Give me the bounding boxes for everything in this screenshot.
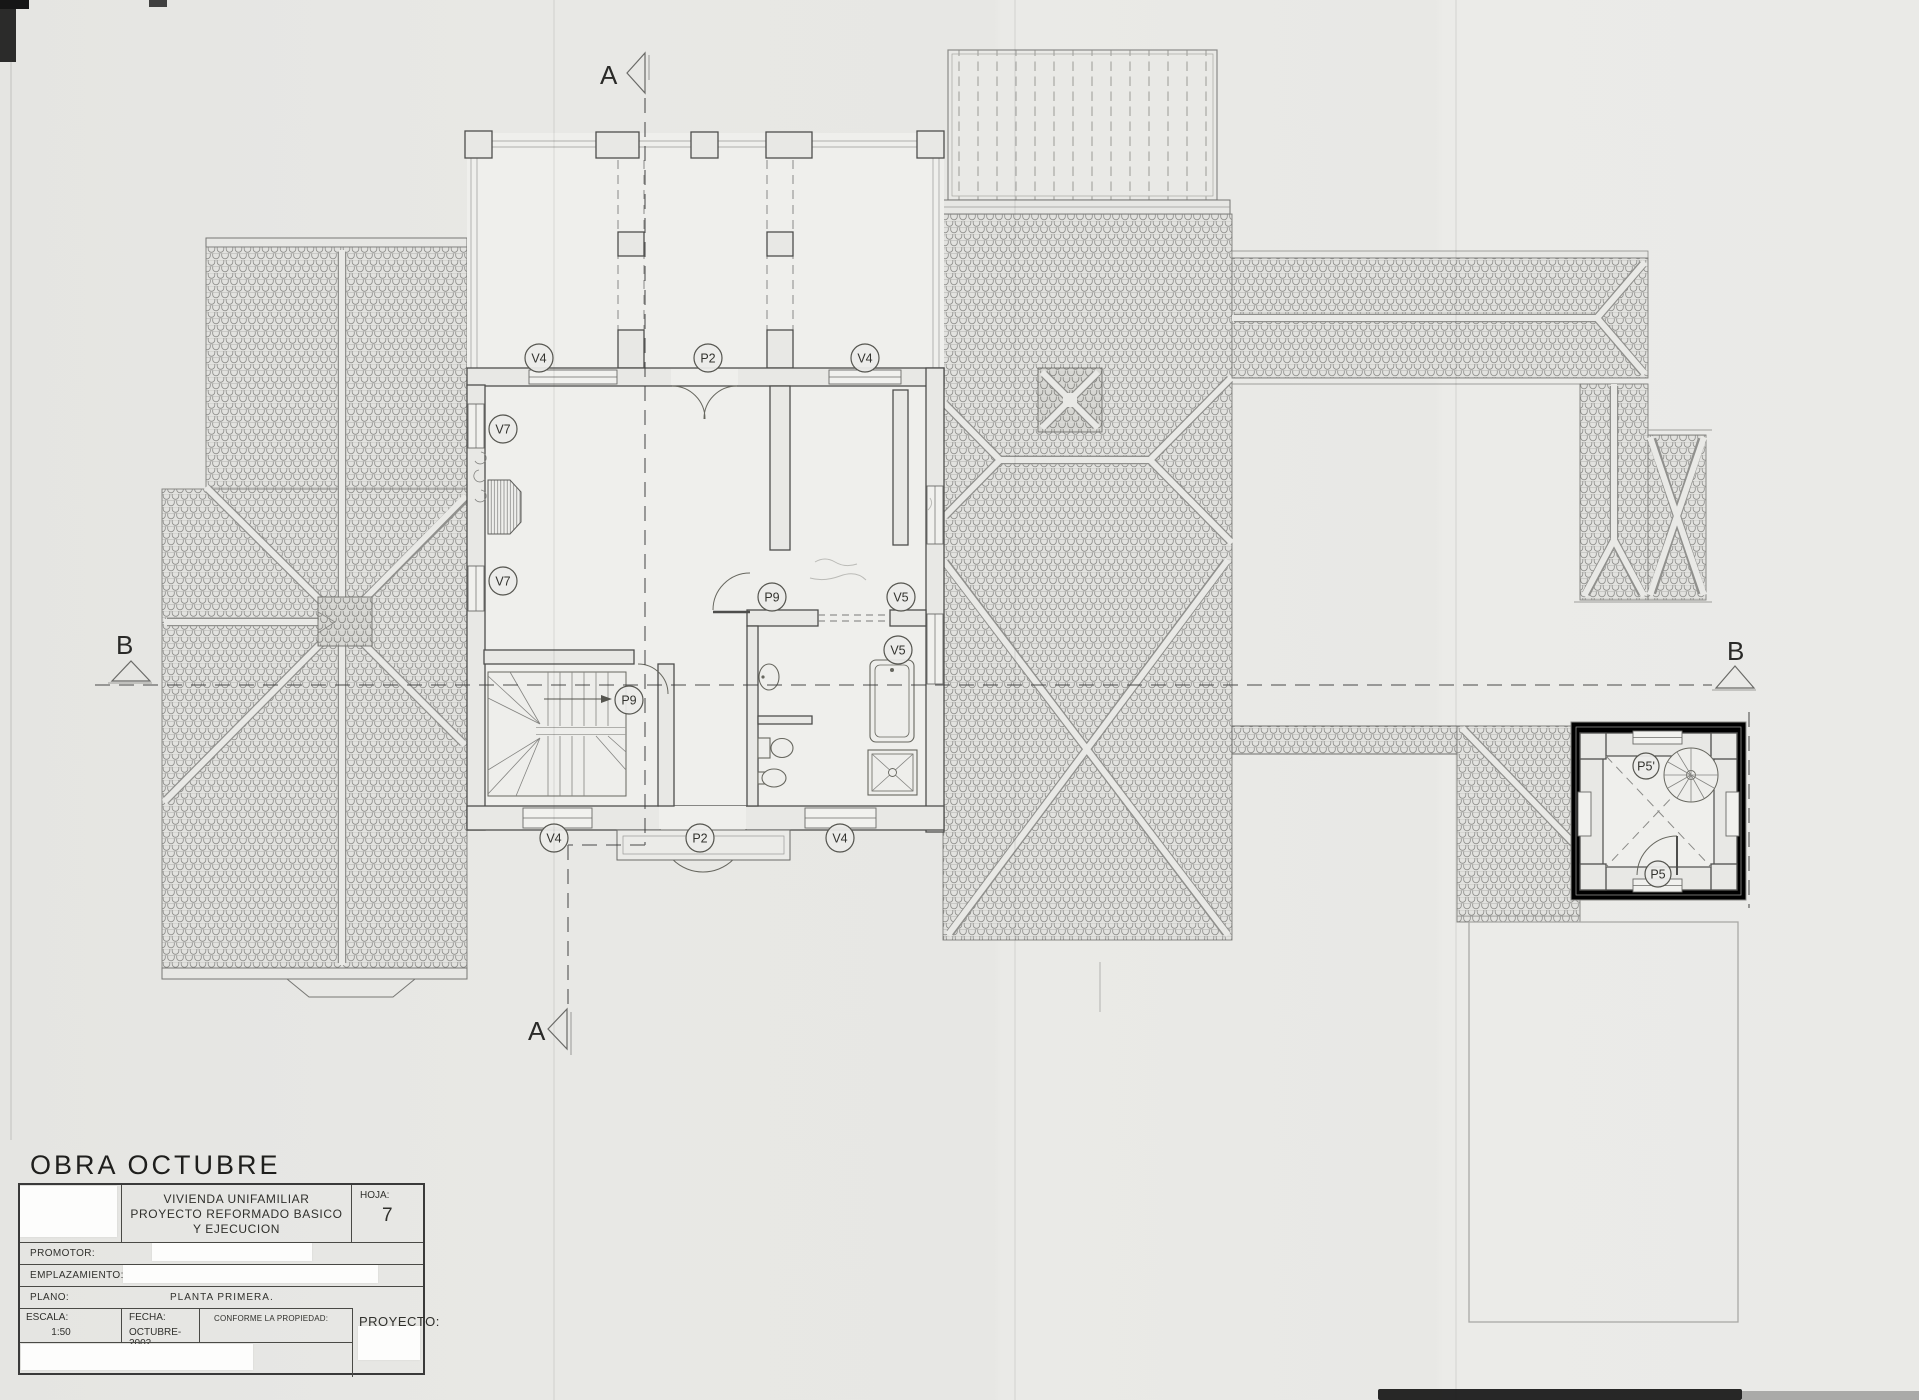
fold-crease [553,0,555,1400]
redacted-promoter [152,1243,312,1261]
paper-edge [10,60,12,1140]
pillar [465,131,492,158]
tag-terrace-window-right: V4 [851,344,879,372]
sheet-cell: HOJA: 7 [352,1185,425,1242]
tag-hall-door: P9 [758,583,786,611]
bidet [762,769,786,787]
tag-tower-upper-door: P5' [1633,753,1659,779]
tag-stair-door: P9 [615,686,643,714]
redacted-project [358,1326,420,1360]
pillar [766,132,812,158]
wc [771,739,793,758]
svg-text:V4: V4 [531,352,546,366]
approval-cell: CONFORME LA PROPIEDAD: [200,1309,352,1343]
section-letter: B [1727,636,1744,666]
band-roof [1232,251,1712,602]
building [465,131,944,872]
pillar [691,132,718,158]
tag-west-window-upper: V7 [489,415,517,443]
east-wall [926,368,944,832]
tag-bathroom-window: V5 [884,636,912,664]
work-title-line1: VIVIENDA UNIFAMILIAR [163,1192,309,1206]
section-letter: A [528,1016,546,1046]
stairs [488,672,626,796]
tag-terrace-window-left: V4 [525,344,553,372]
svg-text:V7: V7 [495,423,510,437]
scan-mark [1742,1391,1919,1400]
scanned-plan-sheet: A A B B V4 P2 V4 V7 V7 P9 V5 V5 P9 V4 P2… [0,0,1919,1400]
chimney-west [318,597,372,646]
plan-name: PLANTA PRIMERA. [170,1292,274,1303]
svg-text:P2: P2 [700,352,715,366]
lower-terrace [1469,922,1738,1322]
work-title-line3: Y EJECUCION [193,1222,280,1236]
eave-bracket [287,979,415,997]
svg-text:V4: V4 [832,832,847,846]
wc-cistern [758,738,770,758]
scan-mark [149,0,167,7]
column [618,232,644,256]
svg-text:P9: P9 [764,591,779,605]
svg-text:V5: V5 [890,644,905,658]
scale-value: 1:50 [26,1327,96,1338]
fold-crease [1014,0,1016,1400]
tag-terrace-door: P2 [694,344,722,372]
scan-mark [0,8,16,62]
tag-south-window-right: V4 [826,824,854,852]
redacted-location [123,1265,378,1283]
work-title: VIVIENDA UNIFAMILIAR PROYECTO REFORMADO … [122,1185,352,1242]
promoter-label: PROMOTOR: [30,1248,95,1259]
project-name: OBRA OCTUBRE [30,1150,281,1181]
pillar [596,132,639,158]
svg-text:P5: P5 [1650,868,1665,882]
column [767,330,793,368]
svg-text:V5: V5 [893,591,908,605]
tag-tower-lower-door: P5 [1645,861,1671,887]
work-title-line2: PROYECTO REFORMADO BASICO [130,1207,342,1221]
section-letter: B [116,630,133,660]
redacted-signature [21,1344,253,1370]
svg-text:P5': P5' [1637,760,1655,774]
sheet-number: 7 [382,1205,393,1227]
approval-label: CONFORME LA PROPIEDAD: [214,1314,328,1323]
plan-row: PLANO: PLANTA PRIMERA. [20,1286,423,1308]
column [618,330,644,368]
svg-text:V4: V4 [857,352,872,366]
scale-label: ESCALA: [26,1312,68,1323]
scale-cell: ESCALA: 1:50 [20,1309,122,1343]
tag-south-door: P2 [686,824,714,852]
tag-bedroom-window: V5 [887,583,915,611]
date-cell: FECHA: OCTUBRE-2002 [122,1309,200,1343]
plan-label: PLANO: [30,1292,69,1303]
redacted-logo [20,1186,117,1237]
svg-text:P9: P9 [621,694,636,708]
scale-date-row: ESCALA: 1:50 FECHA: OCTUBRE-2002 CONFORM… [20,1308,352,1342]
sheet-label: HOJA: [360,1190,389,1201]
tag-west-window-lower: V7 [489,567,517,595]
left-roof [162,238,467,997]
main-roof [943,214,1232,1012]
scan-mark [1378,1389,1742,1400]
column [767,232,793,256]
location-label: EMPLAZAMIENTO: [30,1270,124,1281]
svg-text:V7: V7 [495,575,510,589]
bathtub [870,660,914,742]
svg-text:P2: P2 [692,832,707,846]
fold-crease [1455,0,1457,1400]
tower-roof-wing [1457,726,1580,922]
pillar [917,131,944,158]
date-label: FECHA: [129,1312,166,1323]
chimney-cross [1038,368,1102,432]
spiral-stair [1664,748,1718,802]
section-letter: A [600,60,618,90]
